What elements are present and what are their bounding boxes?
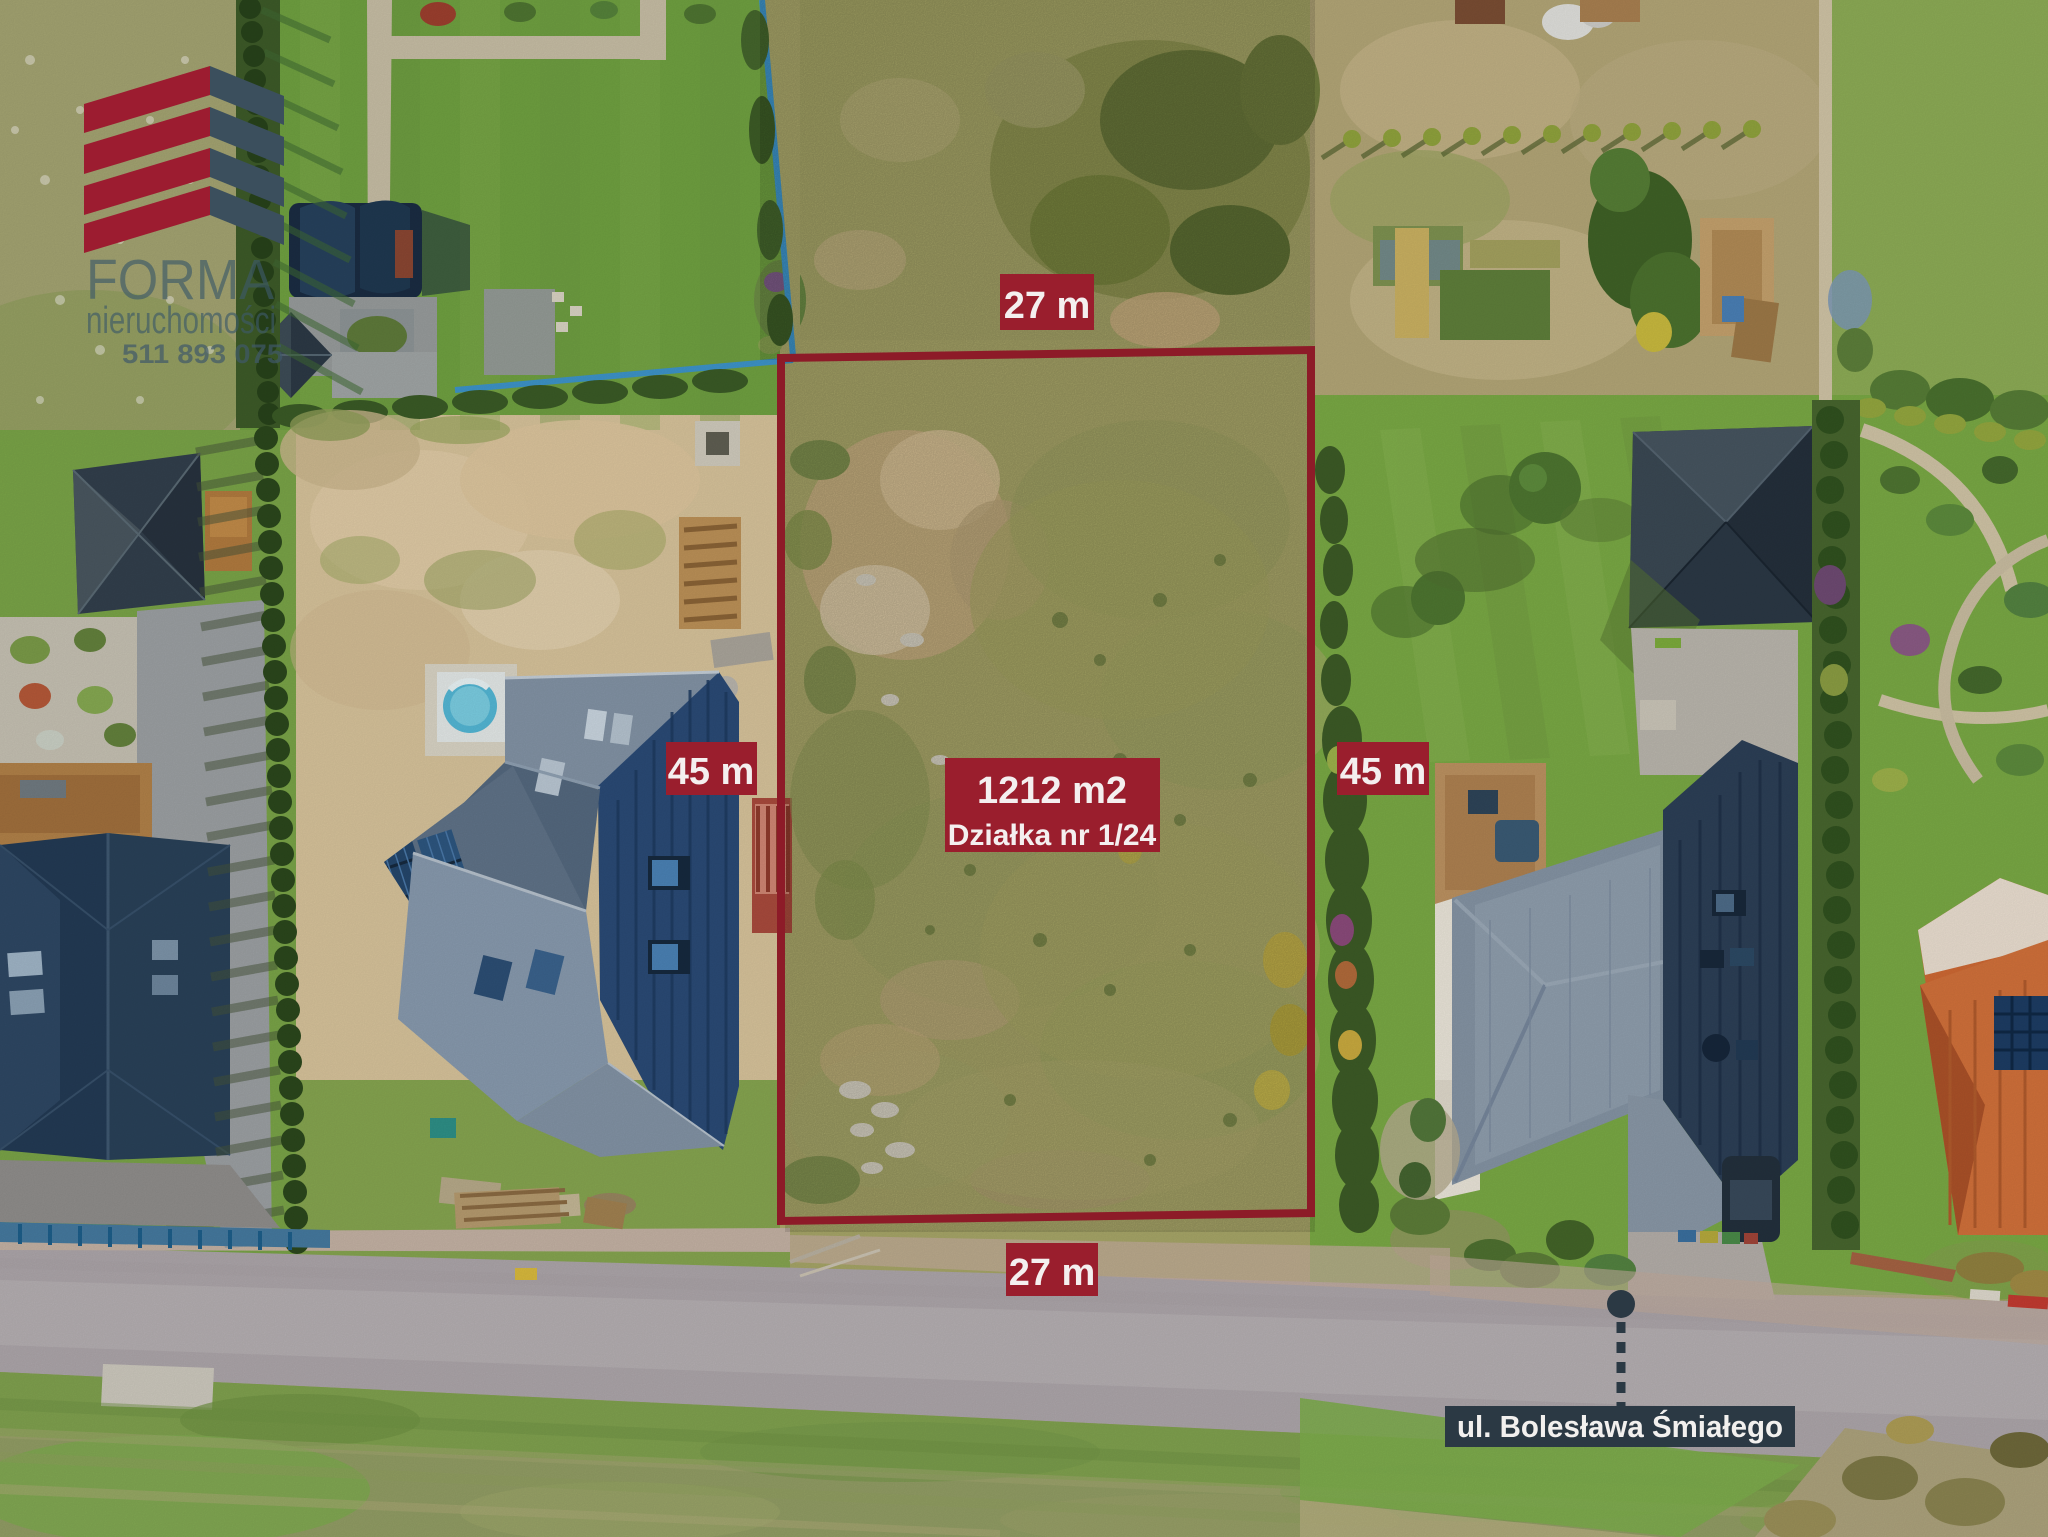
svg-text:511 893 075: 511 893 075 (122, 339, 283, 369)
svg-text:27 m: 27 m (1004, 285, 1091, 327)
svg-text:45 m: 45 m (668, 751, 755, 793)
svg-text:45 m: 45 m (1340, 751, 1427, 793)
svg-text:Działka nr 1/24: Działka nr 1/24 (948, 819, 1157, 852)
svg-text:27 m: 27 m (1009, 1252, 1096, 1294)
svg-text:nieruchomości: nieruchomości (86, 300, 276, 342)
svg-text:ul. Bolesława Śmiałego: ul. Bolesława Śmiałego (1457, 1408, 1783, 1444)
svg-text:1212 m2: 1212 m2 (977, 770, 1127, 812)
